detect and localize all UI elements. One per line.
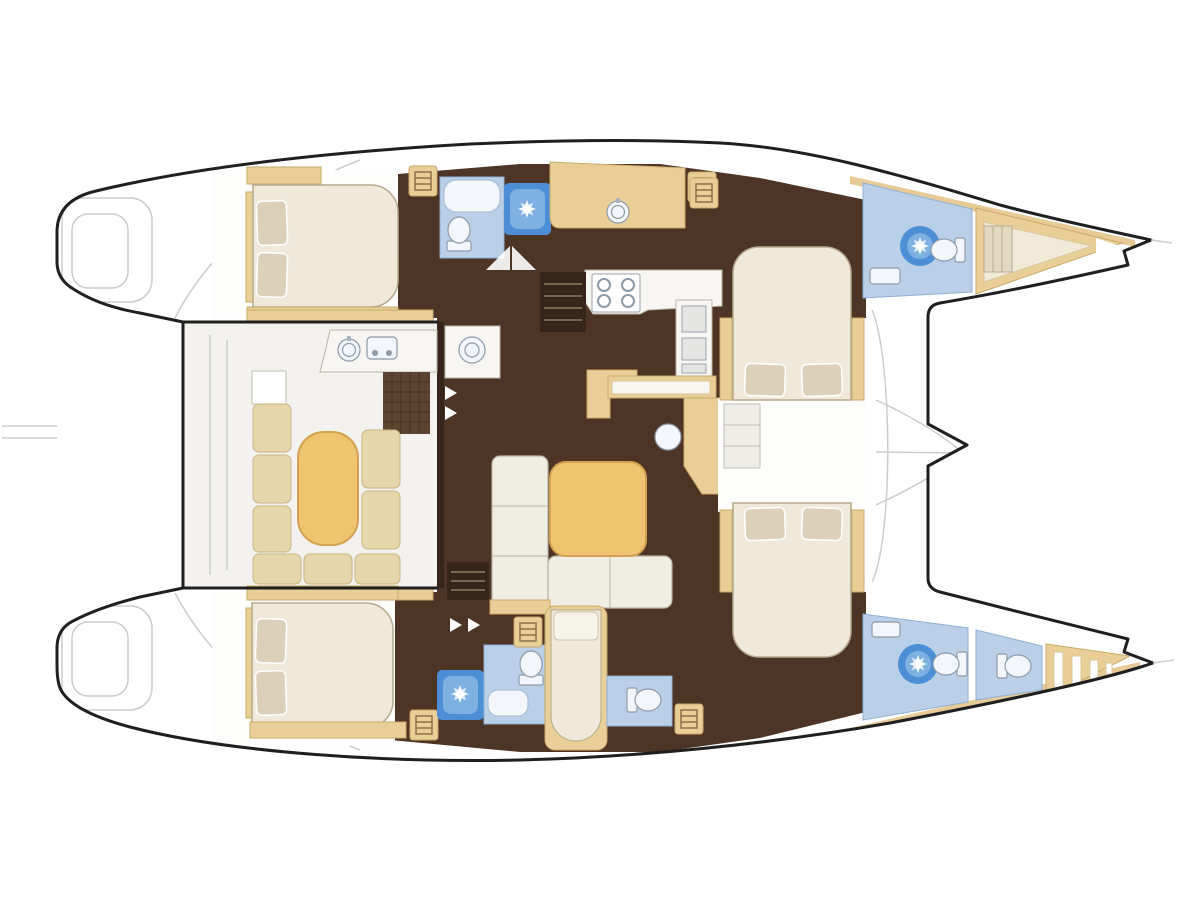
coaming: [247, 310, 433, 322]
pillow: [744, 507, 785, 540]
bottom-single-berth: [545, 606, 607, 750]
pillow: [744, 363, 785, 396]
companionway-cabinet: [410, 710, 438, 740]
side-table: [252, 371, 286, 404]
fridge-icon: [682, 338, 706, 360]
companionway-cabinet: [409, 166, 437, 196]
shower-pan: [488, 690, 528, 716]
cockpit-table: [298, 432, 358, 545]
salon-aft-bulkhead: [437, 322, 444, 588]
oven-icon: [682, 306, 706, 332]
pillow: [255, 670, 287, 715]
pillow: [801, 363, 842, 396]
pillow: [256, 200, 288, 245]
bed-base-strip: [250, 722, 406, 738]
pillow: [255, 618, 287, 663]
companionway-cabinet: [690, 178, 718, 208]
forestay-ghost: [1151, 240, 1172, 243]
pillow: [256, 252, 288, 297]
shelf: [247, 167, 321, 184]
berth-pad: [984, 226, 1012, 272]
stool: [655, 424, 681, 450]
pillow: [554, 612, 598, 640]
teak-locker: [383, 372, 430, 434]
bar-top: [612, 381, 710, 394]
davit-ghost-lines: [2, 426, 57, 438]
forestay-ghost: [1153, 660, 1174, 663]
coffee-table: [550, 462, 646, 556]
drawer-icon: [682, 364, 706, 373]
shower-pan: [444, 180, 500, 212]
top-bow: [850, 176, 1135, 298]
basin: [870, 268, 900, 284]
grill-icon: [367, 337, 397, 359]
companionway-cabinet: [675, 704, 703, 734]
companionway-steps: [540, 272, 586, 332]
companionway-cabinet: [514, 617, 542, 647]
settee-base: [490, 600, 550, 614]
basin: [872, 622, 900, 637]
pillow: [801, 507, 842, 540]
dresser: [724, 404, 760, 468]
catamaran-floor-plan: [0, 0, 1200, 900]
stove-icon: [592, 274, 640, 312]
